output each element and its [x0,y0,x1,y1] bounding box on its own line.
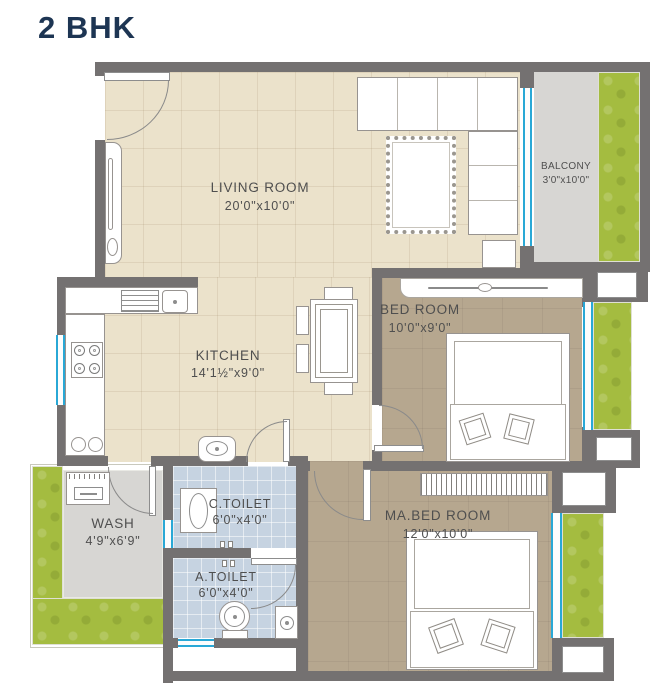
wash-lawn-bottom [32,598,164,645]
wc-bowl [224,606,245,627]
wall-living-left-b [95,140,105,277]
wall-a-toilet-bottom-b [214,638,296,648]
a-toilet-basin [275,606,298,639]
master-lawn-strip [562,513,604,638]
balcony-dims: 3'0"x10'0" [529,175,603,186]
slipper-mark [228,541,233,548]
sofa-cushion [478,78,517,130]
master-bed-pillow-zone [410,611,534,668]
duct-master-bottom-inner [562,646,604,673]
washing-machine-door [74,487,103,500]
wall-wash-top-b [151,456,163,466]
a-toilet-window [178,639,214,647]
kitchen-jar [71,437,86,452]
c-toilet-dims: 6'0"x4'0" [185,513,295,527]
master-bedroom-label: MA.BED ROOM [348,508,528,523]
wall-mid-a [296,461,310,471]
wall-kitchen-top [57,277,198,287]
living-room-label: LIVING ROOM [160,180,360,195]
wall-wash-top-a [57,456,108,466]
wc-tank [222,630,248,639]
balcony-label: BALCONY [529,161,603,172]
basin-bowl [280,616,294,630]
wall-toilet-left-a [163,456,173,520]
slipper-mark [230,560,235,567]
sofa-cushion [469,166,517,200]
wall-stub-balcony-top [520,72,534,88]
kitchen-counter-left [65,314,105,456]
sofa-cushion [398,78,438,130]
master-bedroom-dims: 12'0"x10'0" [348,527,528,541]
sofa-cushion [358,78,398,130]
burner-icon [89,363,100,374]
burner-icon [89,345,100,356]
sink-drainboard [121,290,159,312]
sofa-top [357,77,518,131]
washing-machine-vent [69,474,107,479]
washing-machine [66,472,110,505]
sofa-right [468,131,518,235]
bedroom-label: BED ROOM [340,302,500,317]
gas-stove [71,342,103,378]
wc-toilet [219,601,250,632]
dresser-decor-knob [478,283,492,292]
washing-machine-handle [80,493,97,495]
tv-console [108,158,113,230]
dining-chair [324,287,353,300]
wall-kitchen-left-b [57,405,65,462]
wall-master-left [296,456,308,681]
burner-icon [74,345,85,356]
master-window [551,513,562,638]
wall-stub-balcony-bottom [520,246,534,262]
kitchen-jar [88,437,103,452]
wall-bottom [163,671,556,681]
sofa-cushion [469,132,517,166]
wash-label: WASH [63,516,163,531]
side-table [482,240,516,268]
bedroom-dims: 10'0"x9'0" [340,321,500,335]
c-toilet-window [163,520,173,548]
wash-dims: 4'9"x6'9" [63,534,163,548]
kitchen-dims: 14'1½"x9'0" [148,366,308,380]
burner-icon [74,363,85,374]
carpet-inner [392,142,450,228]
wash-basin-passage [198,436,236,462]
balcony-lawn-strip [598,72,640,262]
basin-bowl [206,441,228,456]
wall-kitchen-left-a [57,277,65,335]
master-wardrobe [420,473,548,496]
bed-sheet [454,341,562,405]
a-toilet-label: A.TOILET [171,570,281,584]
kitchen-label: KITCHEN [148,348,308,363]
a-toilet-dims: 6'0"x4'0" [171,586,281,600]
floor-plan: 2 BHK [0,0,660,700]
living-carpet [386,136,456,234]
decor-pot [107,238,118,256]
sofa-cushion [469,201,517,234]
wall-top [95,62,650,72]
duct-bedroom-top-inner [597,272,637,298]
dining-table-center [320,309,348,373]
duct-master-top-inner [562,472,606,506]
slipper-mark [220,541,225,548]
wall-bedroom-left-a [372,268,382,405]
bedroom-window [583,302,593,430]
dining-chair [324,382,353,395]
living-room-dims: 20'0"x10'0" [160,199,360,213]
dining-chair [296,306,309,335]
a-toilet-door-leaf [251,558,297,565]
bedroom-lawn-strip [593,302,632,430]
wall-toilet-divider-a [163,548,251,558]
wall-bedroom-top [372,268,590,278]
wall-toilet-left-b [163,548,173,683]
plan-title: 2 BHK [38,10,136,46]
slipper-mark [222,560,227,567]
wall-balcony-right [640,62,650,272]
duct-bedroom-bottom-inner [596,437,632,461]
kitchen-window [56,335,65,405]
sofa-cushion [438,78,478,130]
master-bed-sheet [414,539,530,609]
c-toilet-label: C.TOILET [185,497,295,511]
kitchen-sink [162,290,188,313]
